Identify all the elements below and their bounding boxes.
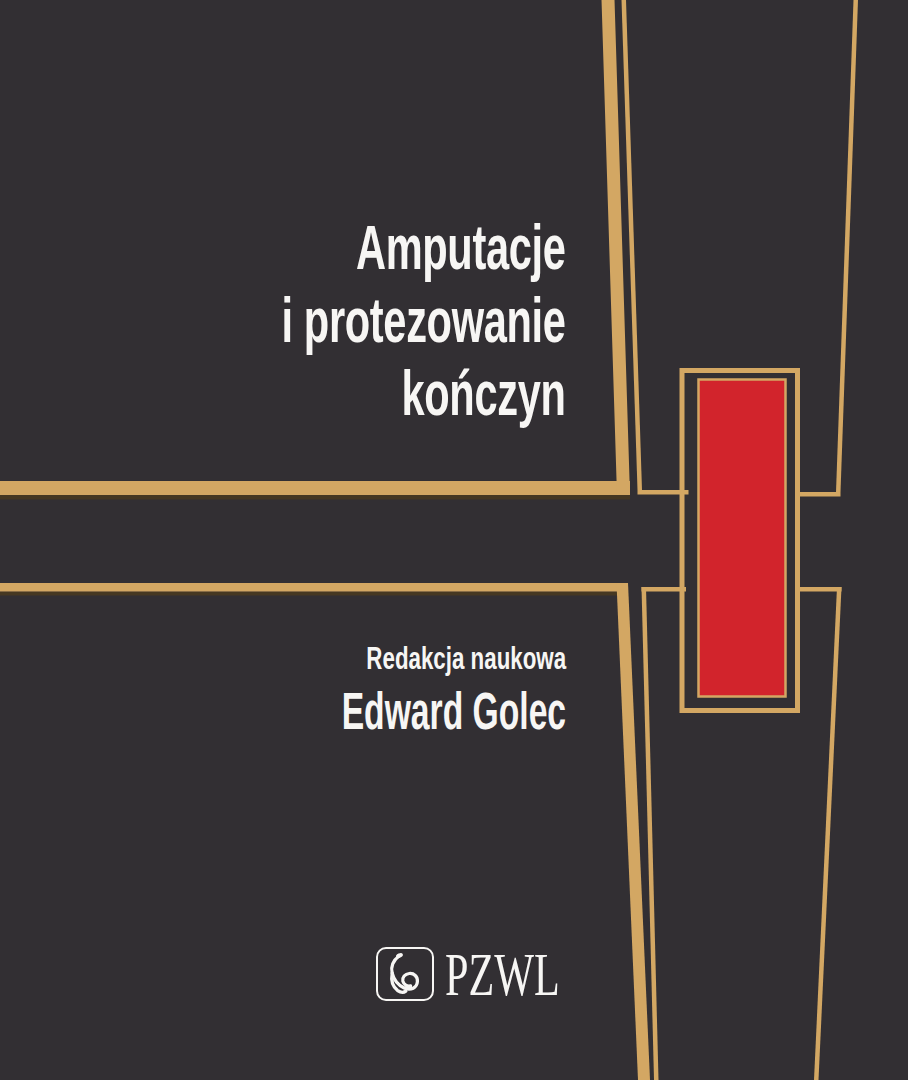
editor-label: Redakcja naukowa [321,640,566,678]
thin-connector-upper-right [795,492,841,497]
book-title: Amputacje i protezowanie kończyn [135,211,566,430]
book-cover: Amputacje i protezowanie kończyn Redakcj… [0,0,908,1080]
gold-band-top [0,481,630,495]
editor-name: Edward Golec [342,682,566,742]
thin-connector-lower-right [795,587,842,592]
thin-connector-lower-left [642,587,687,592]
gold-line-art [0,0,908,1080]
title-line-3: kończyn [282,357,566,430]
band-bottom-shadow [0,592,628,596]
right-line-top [836,0,858,492]
gold-band-bottom [0,583,628,592]
editor-block: Redakcja naukowa Edward Golec [226,640,566,742]
aesculapius-snake-icon [380,950,430,997]
title-line-2: i protezowanie [282,284,566,357]
publisher-logo: PZWL [376,946,614,1001]
publisher-logo-box [376,947,434,1001]
right-line-bottom [814,587,842,1080]
red-rectangle [699,380,786,697]
publisher-wordmark: PZWL [445,947,560,1001]
title-line-1: Amputacje [282,211,566,284]
band-top-shadow [0,495,630,500]
